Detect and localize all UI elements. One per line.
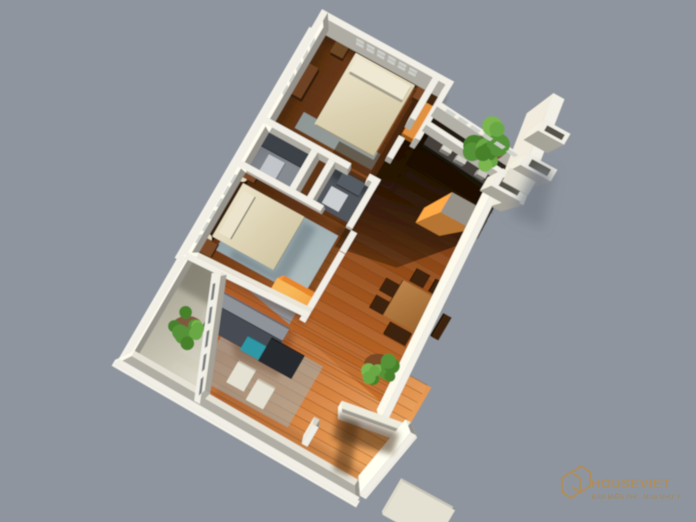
svg-text:HOUSEVIET: HOUSEVIET: [591, 476, 671, 491]
svg-text:BÁN MIỄN PHÍ · MUA NHƯ Ý: BÁN MIỄN PHÍ · MUA NHƯ Ý: [592, 492, 681, 501]
